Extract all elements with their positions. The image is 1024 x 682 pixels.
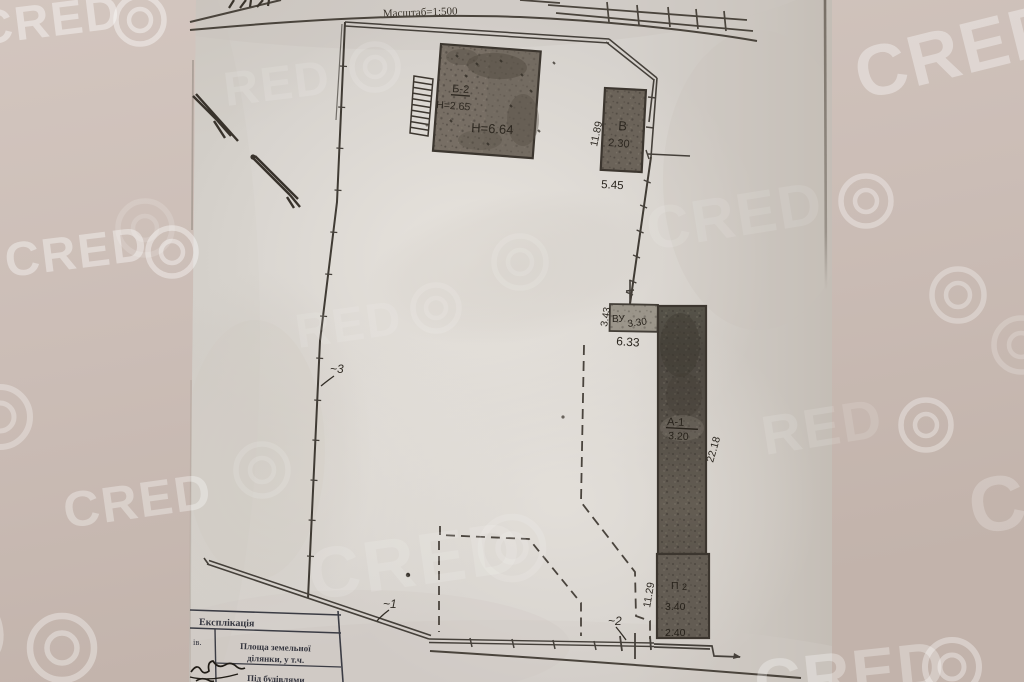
svg-text:2.30: 2.30 [608, 137, 630, 150]
svg-text:3.40: 3.40 [665, 601, 686, 613]
svg-text:6.33: 6.33 [616, 334, 641, 350]
svg-text:2.40: 2.40 [665, 627, 686, 639]
svg-text:Під будівлями: Під будівлями [247, 673, 305, 682]
svg-text:~2: ~2 [608, 614, 622, 628]
svg-text:Експлікація: Експлікація [199, 617, 255, 629]
svg-text:ів.: ів. [193, 637, 202, 647]
svg-text:2: 2 [682, 582, 687, 592]
svg-text:~3: ~3 [330, 362, 344, 376]
svg-text:ВУ: ВУ [612, 314, 625, 325]
svg-text:Б-2: Б-2 [452, 83, 470, 96]
svg-text:Н=6.64: Н=6.64 [471, 120, 514, 137]
svg-text:А-1: А-1 [667, 416, 685, 429]
svg-text:3.20: 3.20 [668, 430, 689, 443]
svg-text:5.45: 5.45 [601, 179, 624, 192]
svg-text:Н=2.65: Н=2.65 [436, 99, 471, 113]
svg-text:П: П [671, 580, 679, 592]
svg-text:В: В [618, 118, 628, 134]
svg-text:ділянки, у т.ч.: ділянки, у т.ч. [247, 653, 304, 665]
